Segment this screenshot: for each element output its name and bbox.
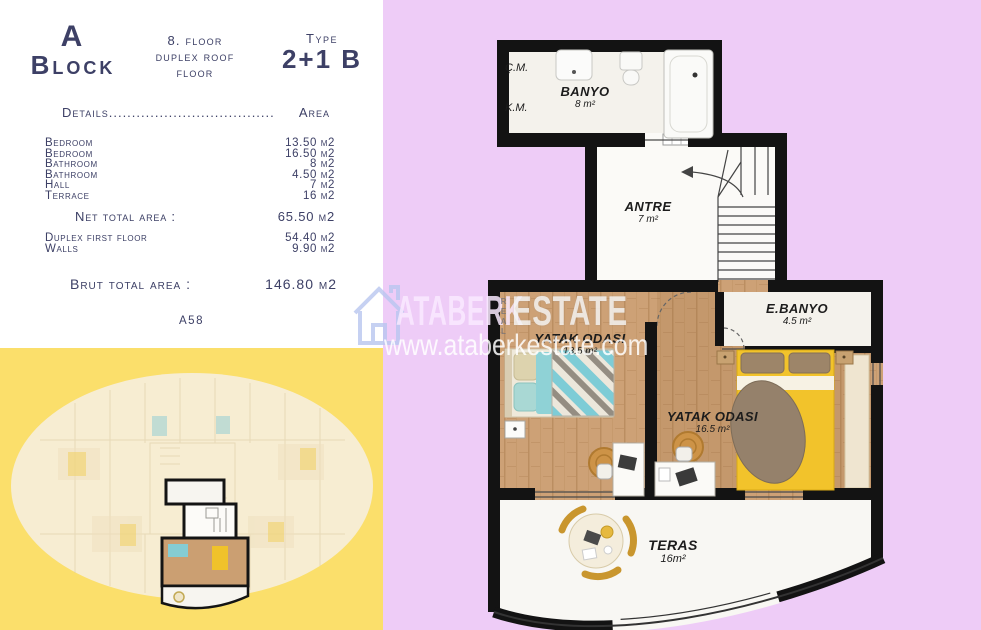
room-label-teras: TERAS 16m² [628, 538, 718, 565]
room-label-antre: ANTRE 7 m² [608, 200, 688, 225]
km-label: K.M. [505, 102, 528, 114]
floorplan-brochure: A Block 8. floor duplex roof floor Type … [0, 0, 981, 630]
cm-label: Ç.M. [505, 62, 528, 74]
room-label-bedroom-left: YATAK ODASI 13.5 m² [520, 332, 640, 357]
room-label-banyo: BANYO 8 m² [545, 85, 625, 110]
room-label-ebanyo: E.BANYO 4.5 m² [752, 302, 842, 327]
room-label-bedroom-right: YATAK ODASI 16.5 m² [655, 410, 770, 435]
